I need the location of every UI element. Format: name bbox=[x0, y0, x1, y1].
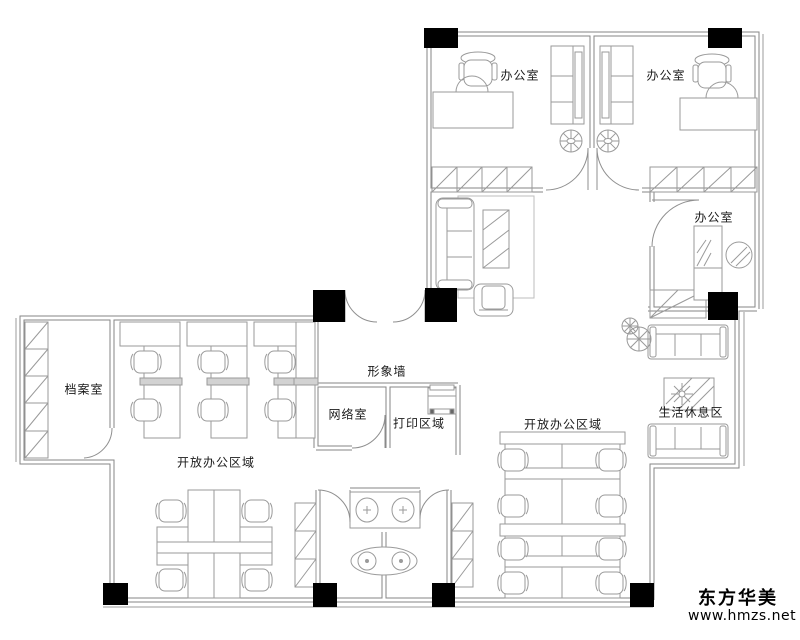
open-office-right-workstations bbox=[498, 432, 626, 598]
open-office-left-workstations bbox=[120, 322, 318, 438]
archive-shelf bbox=[25, 322, 48, 458]
brand-website: www.hmzs.net bbox=[688, 609, 788, 624]
printer-icon bbox=[428, 385, 456, 414]
floor-plan: 办公室 办公室 办公室 档案室 形象墙 网络室 打印区域 开放办公区域 开放办公… bbox=[0, 0, 800, 640]
room-label-office-3: 办公室 bbox=[694, 209, 733, 226]
office2-furniture bbox=[680, 54, 757, 130]
brand-block: 东方华美 www.hmzs.net bbox=[688, 590, 788, 624]
room-label-image-wall: 形象墙 bbox=[367, 363, 406, 380]
fan-icon bbox=[560, 130, 582, 152]
floor-plan-drawing bbox=[0, 0, 800, 640]
office3-furniture bbox=[694, 226, 752, 300]
sink-icon bbox=[392, 498, 414, 522]
room-label-print-area: 打印区域 bbox=[393, 415, 445, 432]
office1-furniture bbox=[433, 52, 513, 128]
room-label-rest-area: 生活休息区 bbox=[658, 404, 723, 421]
fan-icon bbox=[597, 130, 619, 152]
guest-chair-icon bbox=[693, 54, 731, 88]
bathroom-shelf-right bbox=[452, 503, 473, 587]
room-label-archive: 档案室 bbox=[64, 381, 103, 398]
room-label-open-office-left: 开放办公区域 bbox=[177, 454, 255, 471]
room-label-office-1: 办公室 bbox=[500, 67, 539, 84]
plant-icon bbox=[671, 383, 693, 405]
sofa-icon bbox=[648, 424, 728, 458]
plant-spiral-icon bbox=[622, 318, 651, 351]
sink-icon bbox=[356, 498, 378, 522]
room-label-network: 网络室 bbox=[328, 406, 367, 423]
rest-area-furniture bbox=[622, 318, 728, 458]
toilet-icon bbox=[351, 547, 417, 575]
room-label-office-2: 办公室 bbox=[646, 67, 685, 84]
quad-workstation-cluster bbox=[156, 490, 272, 598]
guest-chair-icon bbox=[459, 52, 497, 86]
room-label-open-office-right: 开放办公区域 bbox=[524, 416, 602, 433]
bathroom-shelf-left bbox=[295, 503, 316, 587]
brand-company-name: 东方华美 bbox=[688, 590, 788, 609]
sofa-icon bbox=[648, 325, 728, 359]
